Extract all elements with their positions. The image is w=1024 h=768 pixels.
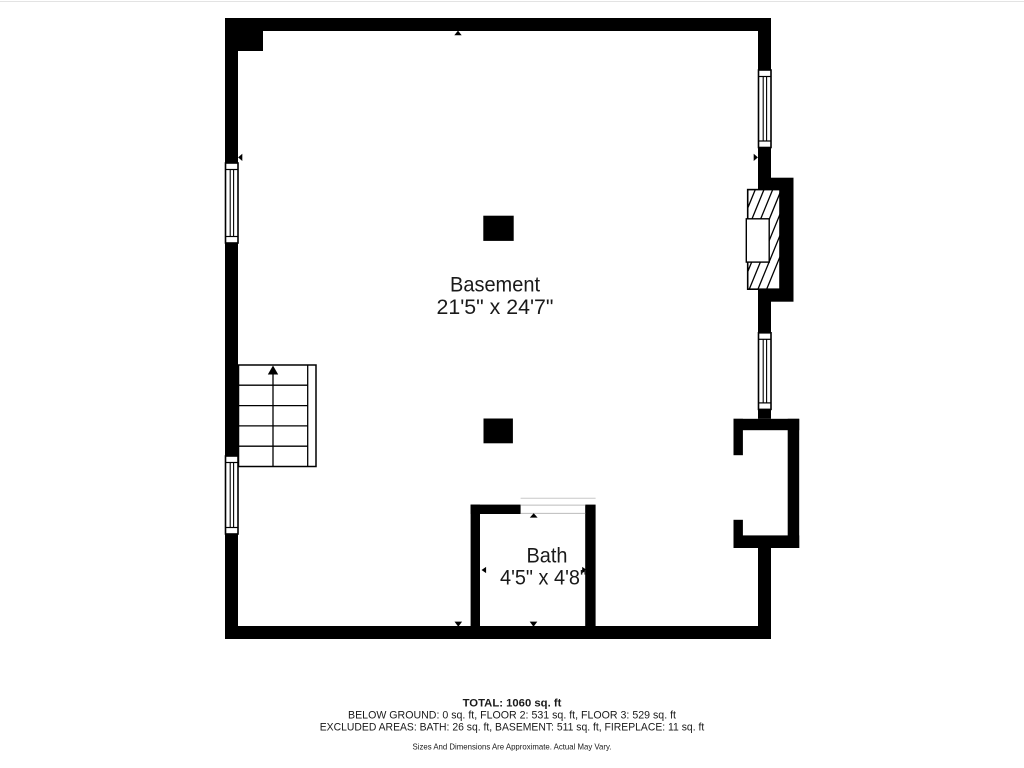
svg-text:Bath: Bath: [527, 543, 568, 567]
svg-text:Basement: Basement: [450, 273, 540, 297]
svg-text:BELOW GROUND: 0 sq. ft, FLOOR: BELOW GROUND: 0 sq. ft, FLOOR 2: 531 sq.…: [348, 710, 676, 722]
svg-text:TOTAL: 1060 sq. ft: TOTAL: 1060 sq. ft: [463, 698, 562, 710]
svg-text:EXCLUDED AREAS: BATH: 26 sq. f: EXCLUDED AREAS: BATH: 26 sq. ft, BASEMEN…: [320, 722, 705, 734]
svg-text:21'5" x 24'7": 21'5" x 24'7": [437, 295, 554, 319]
svg-text:4'5" x 4'8": 4'5" x 4'8": [500, 566, 587, 590]
svg-text:Sizes And Dimensions Are Appro: Sizes And Dimensions Are Approximate. Ac…: [413, 741, 612, 751]
